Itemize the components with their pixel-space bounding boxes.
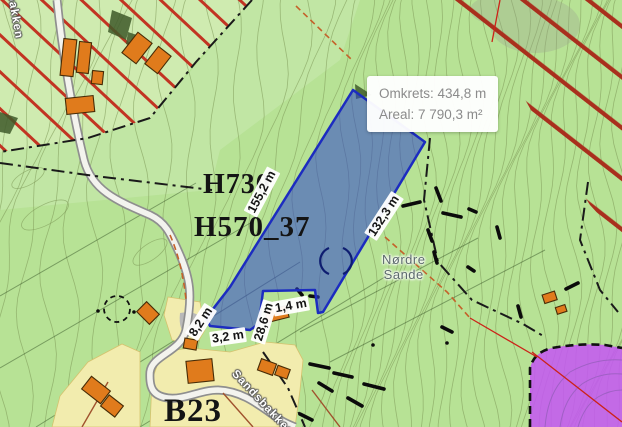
tooltip-area: Areal: 7 790,3 m²: [379, 104, 486, 125]
map-render-layer: [0, 0, 622, 427]
purple-zone: [530, 344, 622, 427]
measurement-tooltip: Omkrets: 434,8 m Areal: 7 790,3 m²: [367, 76, 498, 132]
farm-name-line2: Sande: [382, 267, 425, 282]
zone-label-b23: B23: [164, 395, 222, 427]
place-label-farm: Nørdre Sande: [382, 252, 425, 282]
tooltip-perimeter: Omkrets: 434,8 m: [379, 83, 486, 104]
farm-name-line1: Nørdre: [382, 252, 425, 267]
map-canvas[interactable]: H730 H570_37 B23 Nørdre Sande Sandsbakke…: [0, 0, 622, 427]
zone-label-h570-37: H570_37: [194, 213, 311, 242]
